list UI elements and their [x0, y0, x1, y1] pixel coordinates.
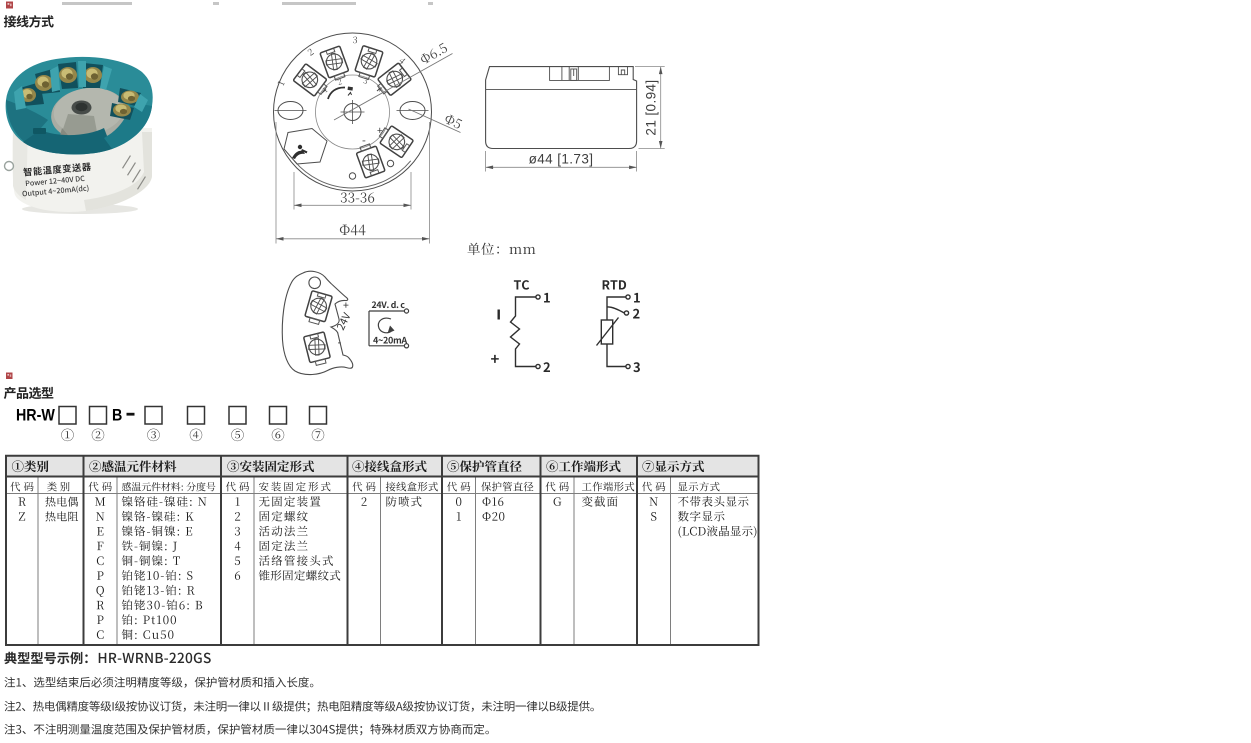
svg-text:ø44 [1.73]: ø44 [1.73] — [529, 152, 594, 167]
svg-text:HR-W: HR-W — [16, 406, 55, 424]
svg-text:21 [0.94]: 21 [0.94] — [644, 79, 659, 135]
svg-text:B: B — [112, 406, 122, 424]
